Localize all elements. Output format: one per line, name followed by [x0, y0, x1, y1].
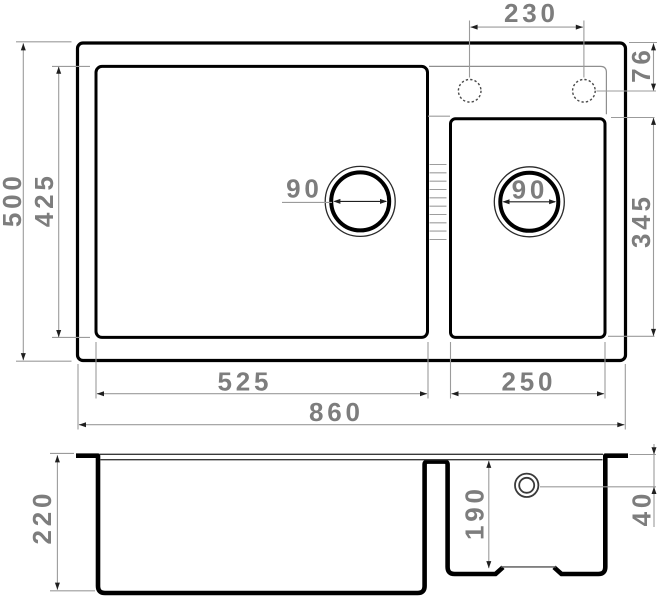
svg-text:345: 345	[626, 193, 656, 248]
svg-text:425: 425	[29, 172, 59, 227]
svg-text:40: 40	[626, 490, 656, 527]
svg-text:90: 90	[286, 174, 323, 204]
svg-text:190: 190	[459, 485, 489, 540]
svg-text:90: 90	[512, 175, 549, 205]
svg-text:860: 860	[309, 397, 364, 427]
svg-text:230: 230	[504, 0, 559, 28]
svg-text:76: 76	[626, 46, 656, 83]
svg-text:250: 250	[502, 367, 557, 397]
svg-text:500: 500	[0, 172, 27, 227]
svg-text:525: 525	[218, 367, 273, 397]
svg-text:220: 220	[27, 490, 57, 545]
